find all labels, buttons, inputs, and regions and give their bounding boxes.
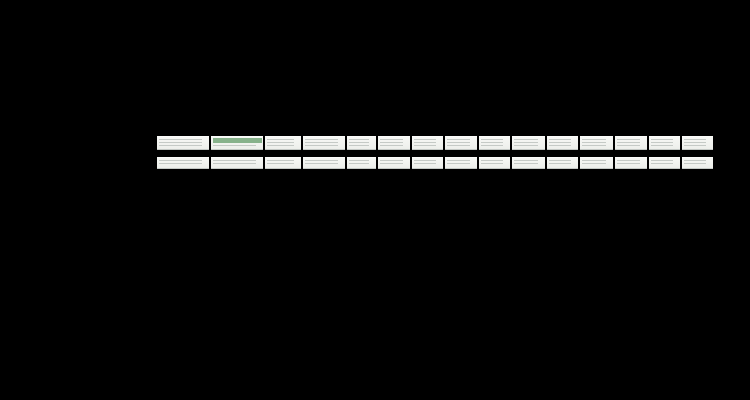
cabinet-cable-distribution: SIVACON bbox=[40, 139, 154, 288]
plinth bbox=[512, 283, 545, 291]
plinth bbox=[378, 283, 410, 291]
louver-slots bbox=[514, 139, 538, 147]
ventilation-louvers-upper bbox=[211, 157, 263, 169]
plinth bbox=[682, 283, 713, 291]
louver-slots bbox=[481, 139, 503, 147]
brand-band: SIVACON bbox=[412, 150, 443, 157]
louver-slots bbox=[514, 160, 538, 166]
ventilation-louvers-top bbox=[157, 136, 209, 150]
brand-band: SIVACON bbox=[580, 150, 613, 157]
louver-slots bbox=[684, 139, 706, 147]
door-panel bbox=[615, 169, 647, 275]
ventilation-louvers-upper bbox=[512, 157, 545, 169]
ventilation-louvers-upper bbox=[445, 157, 477, 169]
ventilation-louvers-top bbox=[649, 136, 680, 150]
louver-slots bbox=[380, 160, 403, 166]
louver-slots bbox=[447, 139, 470, 147]
ventilation-louvers-top bbox=[479, 136, 510, 150]
ventilation-louvers-upper bbox=[378, 157, 410, 169]
cabinet-mesh-door-3: SIVACON bbox=[512, 136, 545, 291]
plinth bbox=[479, 283, 510, 291]
ventilation-louvers-top bbox=[682, 136, 713, 150]
ventilation-louvers-top bbox=[378, 136, 410, 150]
louver-slots bbox=[651, 139, 673, 147]
ventilation-louvers-upper bbox=[580, 157, 613, 169]
cabinet-mcc-drawers-wide: SIVACON bbox=[682, 136, 713, 291]
louver-slots bbox=[159, 139, 202, 147]
brand-band: SIVACON bbox=[615, 150, 647, 157]
brand-band: SIVACON bbox=[303, 150, 345, 157]
louver-slots bbox=[349, 139, 369, 147]
plinth bbox=[303, 283, 345, 291]
door-panel bbox=[682, 169, 713, 275]
door-panel bbox=[445, 169, 477, 275]
ventilation-louvers-top bbox=[512, 136, 545, 150]
perforated-doors bbox=[40, 159, 154, 268]
ventilation-louvers-upper bbox=[547, 157, 578, 169]
louver-slots bbox=[617, 160, 640, 166]
plinth bbox=[40, 285, 154, 288]
louver-slots bbox=[213, 160, 256, 166]
cabinet-mccb-feeder-4: SIVACON bbox=[547, 136, 578, 291]
louver-slots bbox=[305, 139, 338, 147]
ventilation-louvers-top bbox=[580, 136, 613, 150]
plinth bbox=[445, 283, 477, 291]
cabinet-mesh-door-2: SIVACON bbox=[445, 136, 477, 291]
louver-slots bbox=[414, 160, 436, 166]
louver-slots bbox=[582, 160, 606, 166]
door-panel bbox=[211, 169, 263, 275]
louver-slots bbox=[617, 139, 640, 147]
ventilation-louvers-upper bbox=[157, 157, 209, 169]
plinth bbox=[265, 283, 301, 291]
louver-slots bbox=[349, 160, 369, 166]
plinth bbox=[157, 283, 209, 291]
ventilation-louvers-upper bbox=[682, 157, 713, 169]
louver-slots bbox=[684, 160, 706, 166]
door-panel bbox=[479, 169, 510, 275]
cabinet-mcc-drawers-small: SIVACON bbox=[649, 136, 680, 291]
ventilation-louvers-upper bbox=[649, 157, 680, 169]
meter-display bbox=[213, 138, 262, 143]
louver-slots bbox=[380, 139, 403, 147]
brand-band: SIVACON bbox=[378, 150, 410, 157]
cabinet-mccb-feeder-2: SIVACON bbox=[412, 136, 443, 291]
cabinet-mccb-feeder-1: SIVACON bbox=[347, 136, 376, 291]
ventilation-louvers-upper bbox=[615, 157, 647, 169]
ventilation-louvers-upper bbox=[347, 157, 376, 169]
switchboard-product-photo: SIVACONSIVACONSIVACONSIVACONSIVACONSIVAC… bbox=[0, 0, 750, 400]
louver-slots bbox=[305, 160, 338, 166]
cabinet-mesh-door-4: SIVACON bbox=[580, 136, 613, 291]
plinth bbox=[211, 283, 263, 291]
ventilation-louvers-top bbox=[303, 136, 345, 150]
ventilation-louvers-top bbox=[265, 136, 301, 150]
cabinet-control-metering: SIVACON bbox=[265, 136, 301, 291]
plinth bbox=[615, 283, 647, 291]
door-panel bbox=[512, 169, 545, 275]
door-panel bbox=[649, 169, 680, 275]
door-panel bbox=[303, 169, 345, 275]
door-panel bbox=[412, 169, 443, 275]
louver-slots bbox=[447, 160, 470, 166]
ventilation-louvers-upper bbox=[265, 157, 301, 169]
louver-slots bbox=[651, 160, 673, 166]
louver-slots bbox=[549, 139, 571, 147]
louver-slots bbox=[481, 160, 503, 166]
ventilation-louvers-top bbox=[615, 136, 647, 150]
brand-band: SIVACON bbox=[445, 150, 477, 157]
brand-band: SIVACON bbox=[682, 150, 713, 157]
brand-band: SIVACON bbox=[512, 150, 545, 157]
plinth bbox=[347, 283, 376, 291]
door-panel bbox=[580, 169, 613, 275]
cabinet-mccb-feeder-3: SIVACON bbox=[479, 136, 510, 291]
cabinet-acb-feeder-2: SIVACON bbox=[211, 136, 263, 291]
door-panel bbox=[265, 169, 301, 275]
brand-band: SIVACON bbox=[347, 150, 376, 157]
brand-band: SIVACON bbox=[157, 150, 209, 157]
ventilation-louvers-top bbox=[547, 136, 578, 150]
ventilation-louvers-top bbox=[412, 136, 443, 150]
ventilation-louvers-upper bbox=[303, 157, 345, 169]
plinth bbox=[412, 283, 443, 291]
plinth bbox=[649, 283, 680, 291]
brand-band: SIVACON bbox=[40, 152, 154, 159]
cabinet-mcc-drawers-large: SIVACON bbox=[615, 136, 647, 291]
louver-slots bbox=[549, 160, 571, 166]
ventilation-louvers-top bbox=[445, 136, 477, 150]
brand-band: SIVACON bbox=[649, 150, 680, 157]
brand-band: SIVACON bbox=[211, 150, 263, 157]
door-panel bbox=[547, 169, 578, 275]
perforated-top-panel bbox=[40, 139, 154, 152]
cabinet-acb-feeder-3: SIVACON bbox=[303, 136, 345, 291]
plinth bbox=[547, 283, 578, 291]
plinth bbox=[580, 283, 613, 291]
louver-slots bbox=[582, 139, 606, 147]
ventilation-grille-bottom bbox=[40, 268, 154, 278]
floor-reflection bbox=[0, 0, 673, 15]
brand-band: SIVACON bbox=[479, 150, 510, 157]
cabinet-acb-feeder-1: SIVACON bbox=[157, 136, 209, 291]
louver-slots bbox=[159, 160, 202, 166]
brand-band: SIVACON bbox=[547, 150, 578, 157]
louver-slots bbox=[414, 139, 436, 147]
ventilation-louvers-upper bbox=[412, 157, 443, 169]
base-panel bbox=[40, 278, 154, 285]
ventilation-louvers-top bbox=[347, 136, 376, 150]
ventilation-louvers-upper bbox=[479, 157, 510, 169]
cabinet-mesh-door-1: SIVACON bbox=[378, 136, 410, 291]
door-panel bbox=[157, 169, 209, 275]
door-panel bbox=[347, 169, 376, 275]
louver-slots bbox=[267, 139, 294, 147]
brand-band: SIVACON bbox=[265, 150, 301, 157]
door-panel bbox=[378, 169, 410, 275]
louver-slots bbox=[267, 160, 294, 166]
